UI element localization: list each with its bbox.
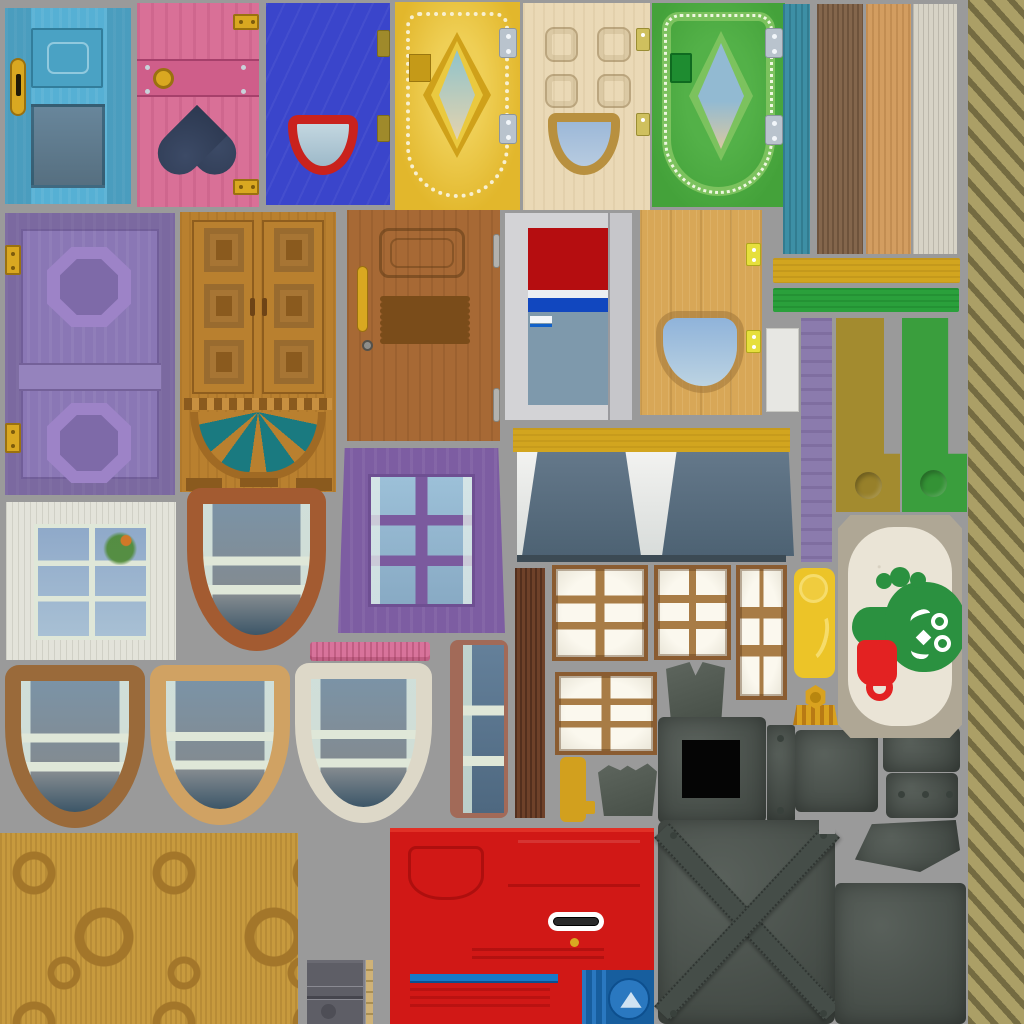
window-glass [31, 104, 105, 188]
octagon-frame [47, 247, 131, 327]
lamp-globe [799, 574, 828, 603]
door-leaf [192, 220, 254, 394]
window-glass [368, 474, 475, 607]
awning-stripe [522, 452, 641, 556]
plaque-green-face [838, 515, 962, 738]
inset-panel [545, 74, 578, 108]
door-handle [10, 58, 26, 116]
heart-window [154, 103, 240, 173]
door-panel [31, 28, 103, 88]
hinge [5, 245, 21, 275]
bar-yellow [773, 258, 960, 283]
white-stripe [528, 290, 608, 298]
lamp-highlight [796, 608, 834, 665]
panel-metal-plain [795, 730, 878, 812]
button [855, 472, 882, 499]
plank-tan [866, 4, 911, 254]
gold-button [570, 938, 579, 947]
door-blue-window [5, 8, 131, 204]
seam-line [518, 840, 640, 843]
window-pane [380, 338, 470, 344]
strip-bamboo [366, 960, 373, 1024]
plank-dark-brown [515, 568, 545, 818]
cross-board [137, 59, 259, 97]
scrap-gray-notched [666, 662, 725, 719]
box-emblem [608, 978, 650, 1020]
plank-white [913, 4, 957, 254]
seam-line [508, 884, 640, 887]
octagon-inset [60, 259, 118, 315]
panel-metal-black-square [658, 717, 766, 823]
screws [772, 121, 777, 126]
door-edge [608, 213, 632, 420]
mail-slot [548, 912, 604, 931]
window-arch-brown [5, 665, 145, 828]
face-eye-ring [934, 635, 951, 652]
screws [145, 65, 150, 70]
top-panel [379, 228, 465, 278]
half-round-window [288, 115, 358, 175]
screws [641, 118, 645, 122]
foot [240, 478, 278, 487]
mail-slot-opening [553, 917, 599, 926]
door-handle [357, 266, 368, 332]
panel [274, 284, 314, 328]
bracket-tab [583, 801, 595, 814]
shutter-shoji-medium [654, 565, 731, 660]
door-white-red-panel [505, 213, 632, 420]
lamp-yellow [794, 568, 835, 678]
door-gold-diamond [395, 2, 520, 210]
bar-green [773, 288, 959, 312]
finial-center [810, 692, 821, 703]
rivets [670, 832, 677, 839]
octagon-frame [47, 403, 131, 483]
texture-atlas [0, 0, 1024, 1024]
bracket-olive [836, 318, 900, 512]
panel [274, 340, 314, 384]
window-grid [380, 296, 470, 422]
porthole-window [663, 318, 737, 386]
window-brown-shield [187, 488, 326, 651]
hinge [636, 28, 650, 51]
window-arch-tan [150, 665, 290, 825]
strip-white [766, 328, 799, 412]
door-leaf [262, 220, 324, 394]
diamond-glass [439, 50, 475, 140]
hinge [499, 114, 517, 144]
bar-pink [310, 642, 430, 661]
door-walnut-eight-pane [347, 210, 500, 441]
rivets [898, 791, 905, 798]
face-bumps [876, 573, 892, 589]
inset-panel [597, 74, 631, 108]
panel-metal-large [835, 883, 966, 1024]
door-pink-heart [137, 3, 259, 207]
hinge [746, 330, 761, 353]
panel [204, 228, 244, 272]
inset-panel [597, 27, 631, 62]
shutter-shoji-tall [736, 565, 787, 700]
hinge [5, 423, 21, 453]
mid-rail [19, 363, 161, 391]
button [920, 470, 947, 497]
window-glass [463, 645, 504, 813]
strip-metal-riveted [767, 725, 795, 822]
plank-brown [817, 4, 863, 254]
scrap-gray-small [598, 763, 657, 816]
vent-lines [472, 948, 604, 964]
plank-teal [783, 4, 810, 254]
corner-notch [819, 820, 835, 834]
box-stripes [582, 970, 609, 1024]
screws [752, 248, 756, 252]
face-head [885, 582, 967, 672]
screws [772, 34, 777, 39]
door-face [528, 228, 608, 405]
rivets [777, 735, 784, 742]
screws [239, 185, 243, 189]
door-handle [250, 298, 255, 316]
finial-gold [793, 685, 838, 725]
cabinet-gray-small [307, 960, 365, 1024]
bracket-green [902, 318, 967, 512]
hinge [765, 28, 783, 58]
panel [204, 340, 244, 384]
strip-purple [801, 318, 832, 562]
top-bar [513, 428, 790, 452]
octagon-inset [60, 415, 118, 471]
door-metal-cross-brace [658, 820, 835, 1024]
hinge [493, 234, 500, 268]
cabinet-knob [321, 1004, 336, 1019]
dentil-trim [184, 398, 332, 410]
screws [506, 34, 511, 39]
awning-stripe [662, 452, 794, 556]
mountain-icon [617, 989, 645, 1013]
screws [11, 430, 15, 434]
screws [11, 252, 15, 256]
hinge [233, 179, 259, 195]
bottom-edge [517, 555, 786, 562]
hinge [746, 243, 761, 266]
red-panel [528, 228, 608, 290]
panel-metal-three-rivets [886, 773, 958, 818]
window-purple-six-pane [338, 448, 505, 633]
hinge [765, 115, 783, 145]
black-opening [682, 740, 740, 798]
door-brown-fanlight [180, 212, 336, 492]
panel-inset [390, 238, 454, 268]
door-oak-porthole [640, 210, 762, 415]
half-round-window [548, 113, 620, 175]
floor-swirl-wood [0, 833, 298, 1024]
awning-panel [513, 428, 790, 562]
window-narrow-blue [450, 640, 508, 818]
hinge [377, 115, 390, 142]
hinge [636, 113, 650, 136]
blue-stripe [528, 298, 608, 312]
hinge [499, 28, 517, 58]
blue-stripe [410, 974, 558, 983]
lock-plate [670, 53, 692, 83]
door-knob [153, 68, 174, 89]
door-cream-squares [523, 3, 650, 210]
fanlight-window [190, 412, 326, 480]
panel [204, 284, 244, 328]
plaque-inner [848, 527, 952, 726]
door-purple-octagons [5, 213, 175, 495]
panel-inset [47, 42, 89, 74]
screws [239, 20, 243, 24]
red-cup-handle [866, 674, 893, 701]
bracket-yellow-small [560, 757, 586, 822]
texture-diagonal-khaki [968, 0, 1024, 1024]
panel-metal-skewed [855, 820, 960, 872]
screws [752, 335, 756, 339]
hinge [493, 388, 500, 422]
window-glass [34, 524, 150, 640]
shutter-shoji-large [552, 565, 648, 661]
shutter-shoji-wide [555, 672, 657, 755]
face-eye-ring [931, 613, 948, 630]
blue-box [582, 970, 654, 1024]
keyhole [16, 74, 21, 96]
vent-lines [410, 988, 550, 1008]
lock-plate [409, 54, 431, 82]
door-royal-blue [266, 3, 390, 205]
inset-panel [545, 27, 578, 62]
pocket-outline [408, 846, 484, 900]
awning-body [517, 452, 786, 556]
door-handle [262, 298, 267, 316]
screws [641, 33, 645, 37]
label-tag [530, 316, 552, 323]
window-white-six-pane [6, 502, 176, 660]
panel [274, 228, 314, 272]
door-green-diamond [652, 3, 785, 207]
door-knob [362, 340, 373, 351]
hinge [233, 14, 259, 30]
label-tag-line [530, 324, 552, 327]
hinge [377, 30, 390, 57]
window-arch-white [295, 663, 432, 823]
door-red-utility [390, 828, 654, 1024]
screws [506, 120, 511, 125]
